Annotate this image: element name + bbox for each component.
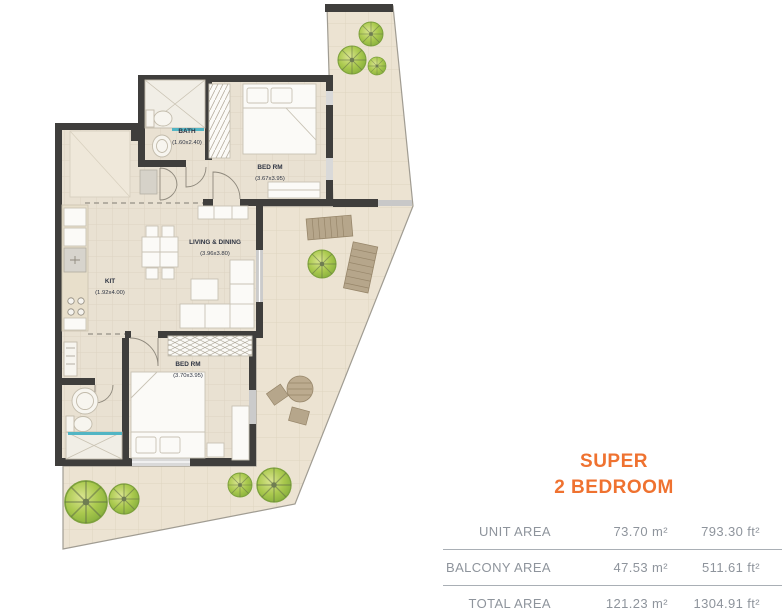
kitchen-fixtures (62, 205, 88, 331)
table-row-unit-area: UNIT AREA 73.70 m² 793.30 ft² (443, 514, 782, 550)
floorplan-page: BATH (1.60x2.40) BED RM (3.67x3.95) LIVI… (0, 0, 782, 615)
room-label-kit: KIT (105, 278, 115, 285)
table-row-balcony-area: BALCONY AREA 47.53 m² 511.61 ft² (443, 550, 782, 586)
room-label-bed2: BED RM (175, 361, 200, 368)
table-row-total-area: TOTAL AREA 121.23 m² 1304.91 ft² (443, 586, 782, 615)
area-row-imperial: 511.61 ft² (668, 560, 782, 575)
area-row-metric: 73.70 m² (551, 524, 668, 539)
room-dims-bath: (1.60x2.40) (172, 140, 202, 146)
room-dims-kit: (1.92x4.00) (95, 290, 125, 296)
room-label-bath: BATH (178, 128, 196, 135)
area-row-metric: 121.23 m² (551, 596, 668, 611)
area-row-label: TOTAL AREA (443, 596, 551, 611)
room-dims-bed2: (3.70x3.95) (173, 373, 203, 379)
coffee-table (191, 279, 218, 300)
area-table: UNIT AREA 73.70 m² 793.30 ft² BALCONY AR… (443, 514, 782, 615)
area-row-label: BALCONY AREA (443, 560, 551, 575)
floor-plan: BATH (1.60x2.40) BED RM (3.67x3.95) LIVI… (0, 0, 470, 570)
room-label-living: LIVING & DINING (189, 239, 241, 246)
unit-title-line2: 2 BEDROOM (512, 475, 716, 501)
room-dims-bed1: (3.67x3.95) (255, 176, 285, 182)
unit-title: SUPER 2 BEDROOM (512, 449, 716, 501)
area-row-imperial: 1304.91 ft² (668, 596, 782, 611)
area-row-metric: 47.53 m² (551, 560, 668, 575)
sun-lounger (306, 215, 353, 240)
area-row-label: UNIT AREA (443, 524, 551, 539)
room-label-bed1: BED RM (257, 164, 282, 171)
tv-unit (198, 206, 248, 219)
area-row-imperial: 793.30 ft² (668, 524, 782, 539)
unit-title-line1: SUPER (512, 449, 716, 475)
room-dims-living: (3.96x3.80) (200, 251, 230, 257)
